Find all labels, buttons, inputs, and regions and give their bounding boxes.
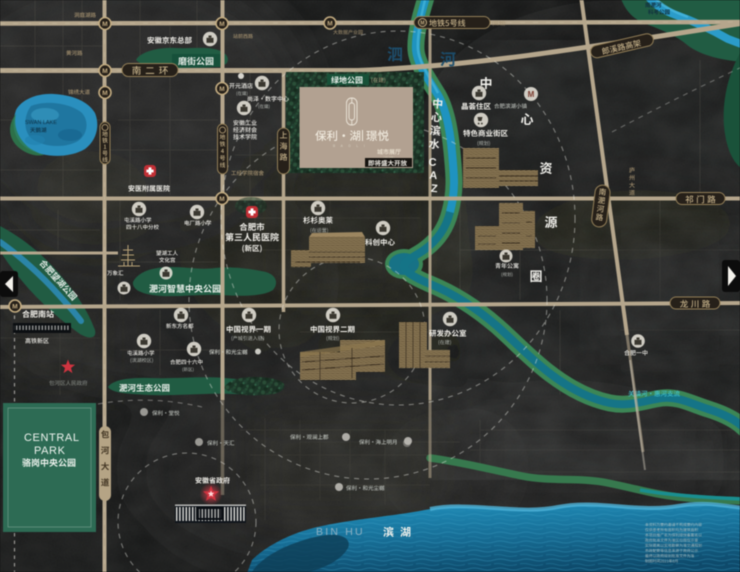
svg-text:M: M bbox=[102, 90, 107, 97]
svg-text:M: M bbox=[219, 21, 224, 28]
svg-text:M: M bbox=[12, 303, 17, 310]
svg-text:M: M bbox=[420, 21, 424, 27]
svg-text:M: M bbox=[102, 68, 107, 75]
svg-text:A: A bbox=[429, 170, 438, 183]
svg-text:PARK: PARK bbox=[34, 445, 66, 457]
svg-text:C: C bbox=[428, 156, 437, 169]
svg-text:CENTRAL: CENTRAL bbox=[24, 432, 80, 444]
svg-text:BIN HU: BIN HU bbox=[316, 526, 365, 538]
svg-text:M: M bbox=[327, 20, 332, 27]
svg-text:M: M bbox=[528, 90, 535, 99]
svg-text:M: M bbox=[219, 86, 224, 93]
svg-text:B A O L I: B A O L I bbox=[333, 144, 367, 148]
svg-text:SWAN LAKE: SWAN LAKE bbox=[25, 120, 57, 126]
svg-text:M: M bbox=[102, 21, 107, 28]
svg-text:Z: Z bbox=[430, 183, 438, 196]
svg-text:M: M bbox=[219, 196, 224, 203]
